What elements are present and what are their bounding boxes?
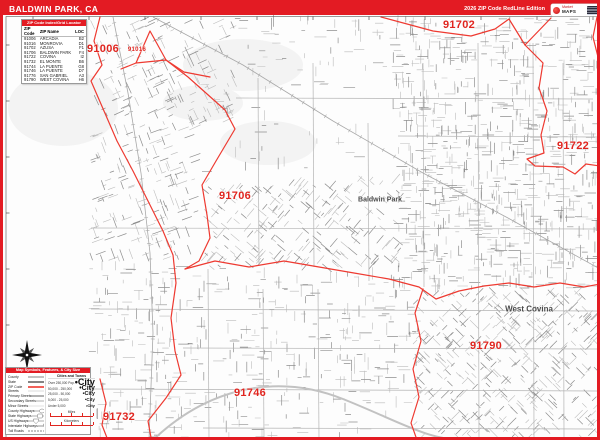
city-size-label: 25,000 - 50,000 bbox=[48, 392, 70, 396]
column-header: ZIP Name bbox=[38, 26, 73, 37]
zip-index-table: ZIP Code Index/Grid Locator ZIP CodeZIP … bbox=[21, 19, 87, 84]
zip-boundary-east-edge bbox=[593, 17, 598, 57]
table-row: 91790WEST COVINAH6 bbox=[22, 78, 86, 83]
legend-item-label: Primary Streets bbox=[8, 394, 31, 398]
city-size-sample: •City bbox=[85, 398, 95, 403]
city-size-label: Under 5,000 bbox=[48, 404, 66, 408]
legend-item-toll: Toll Roads bbox=[8, 428, 44, 433]
title-bar: BALDWIN PARK, CA 2026 ZIP Code RedLine E… bbox=[3, 3, 600, 15]
legend-item-label: Minor Streets bbox=[8, 404, 28, 408]
city-size-label: 50,000 - 250,000 bbox=[48, 387, 72, 391]
zip-index-grid: ZIP CodeZIP NameLOC 91006ARCADIAB291016M… bbox=[22, 26, 86, 83]
legend-city-sizes: Cities and Towns Over 250,000 Pop.•City5… bbox=[46, 373, 97, 434]
legend-item-label: US Highways bbox=[8, 419, 28, 423]
city-size-label: 5,000 - 25,000 bbox=[48, 398, 69, 402]
legend-line-symbols: CountyStateZIP CodeStreetsPrimary Street… bbox=[6, 373, 46, 434]
edition-label: 2026 ZIP Code RedLine Edition bbox=[464, 6, 545, 12]
city-size-label: Over 250,000 Pop. bbox=[48, 381, 75, 385]
zip-index-header: ZIP Code Index/Grid Locator bbox=[22, 20, 86, 26]
scale-bar-miles: Miles bbox=[48, 410, 95, 417]
legend-item-label: County Highways bbox=[8, 409, 34, 413]
scale-bar-line bbox=[50, 414, 93, 417]
zip-boundary-south-divider bbox=[411, 289, 423, 440]
map-legend: Map Symbols, Features, & City Size Count… bbox=[5, 367, 91, 435]
table-cell: H6 bbox=[73, 78, 86, 83]
logo-wordmark: Market MAPS bbox=[562, 6, 576, 14]
logo-globe-icon bbox=[553, 7, 560, 14]
city-size-row: Under 5,000•City bbox=[48, 403, 95, 409]
page-title: BALDWIN PARK, CA bbox=[9, 4, 98, 14]
legend-item-label: Streets bbox=[8, 389, 19, 393]
legend-item-label: Toll Roads bbox=[8, 429, 24, 433]
zip-index-column-headers: ZIP CodeZIP NameLOC bbox=[22, 26, 86, 37]
table-cell: WEST COVINA bbox=[38, 78, 73, 83]
table-cell: 91790 bbox=[22, 78, 38, 83]
column-header: ZIP Code bbox=[22, 26, 38, 37]
zip-code-wall-map: 9100691016917029172291706917909174691732… bbox=[0, 0, 600, 440]
marketmaps-logo: Market MAPS bbox=[551, 4, 600, 16]
logo-text-block bbox=[587, 6, 599, 15]
legend-item-label: State bbox=[8, 380, 16, 384]
scale-bar-kilometers: Kilometers bbox=[48, 419, 95, 426]
legend-item-label: ZIP Code bbox=[8, 385, 22, 389]
city-size-sample: •City bbox=[86, 404, 95, 408]
zip-boundary-southwest bbox=[100, 379, 109, 440]
toll-line-sample bbox=[28, 428, 44, 434]
column-header: LOC bbox=[73, 26, 86, 37]
scale-bar-line bbox=[50, 423, 93, 426]
zip-boundary-mid bbox=[185, 261, 600, 299]
legend-item-label: County bbox=[8, 375, 19, 379]
